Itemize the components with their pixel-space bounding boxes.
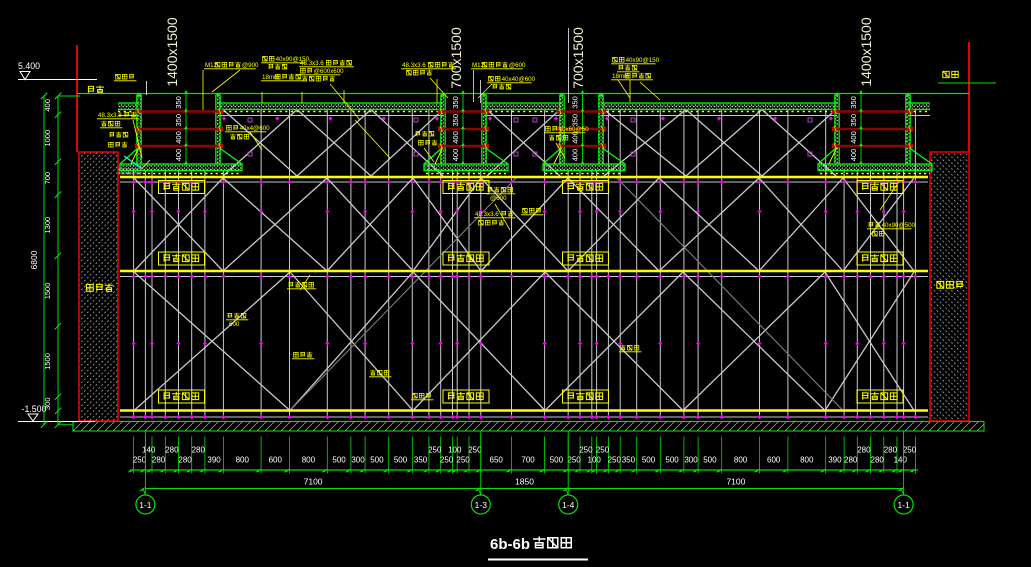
svg-text:100: 100 — [448, 446, 462, 455]
svg-text:100: 100 — [588, 456, 602, 465]
svg-text:1-4: 1-4 — [562, 500, 575, 510]
svg-text:800: 800 — [302, 456, 316, 465]
svg-text:700x1500: 700x1500 — [570, 27, 586, 89]
svg-text:18mm: 18mm — [612, 73, 629, 80]
svg-text:650: 650 — [490, 456, 504, 465]
svg-text:250: 250 — [456, 456, 470, 465]
svg-text:700x1500: 700x1500 — [448, 27, 464, 89]
svg-text:500: 500 — [394, 456, 408, 465]
svg-text:1400x1500: 1400x1500 — [858, 17, 874, 87]
svg-text:350: 350 — [571, 96, 580, 109]
svg-text:500: 500 — [642, 456, 656, 465]
svg-text:40x90@500: 40x90@500 — [882, 222, 916, 229]
svg-text:350: 350 — [570, 114, 579, 127]
svg-text:6b-6b: 6b-6b — [490, 536, 530, 553]
svg-text:600: 600 — [767, 456, 781, 465]
svg-text:140: 140 — [894, 456, 908, 465]
svg-text:390: 390 — [828, 456, 842, 465]
svg-text:40x40@600: 40x40@600 — [502, 76, 536, 83]
svg-text:250: 250 — [133, 456, 147, 465]
svg-text:1-3: 1-3 — [475, 500, 488, 510]
svg-text:400: 400 — [451, 131, 460, 144]
svg-text:350: 350 — [414, 456, 428, 465]
svg-text:500: 500 — [703, 456, 717, 465]
svg-text:@900: @900 — [242, 62, 259, 69]
svg-text:400: 400 — [174, 131, 183, 144]
svg-text:280: 280 — [178, 456, 192, 465]
svg-text:400: 400 — [451, 149, 460, 162]
svg-text:250: 250 — [608, 456, 622, 465]
svg-text:7100: 7100 — [304, 477, 323, 487]
svg-text:800: 800 — [236, 456, 250, 465]
svg-text:280: 280 — [844, 456, 858, 465]
svg-text:400: 400 — [849, 149, 858, 162]
svg-text:40x60@50: 40x60@50 — [559, 126, 590, 133]
svg-text:@600x600: @600x600 — [314, 68, 345, 75]
svg-text:1850: 1850 — [515, 477, 534, 487]
svg-text:@600: @600 — [509, 62, 526, 69]
svg-text:280: 280 — [165, 446, 179, 455]
svg-text:400: 400 — [571, 149, 580, 162]
svg-text:350: 350 — [849, 96, 858, 109]
svg-text:300: 300 — [351, 456, 365, 465]
svg-text:280: 280 — [152, 456, 166, 465]
svg-text:6800: 6800 — [29, 250, 39, 269]
svg-text:350: 350 — [622, 456, 636, 465]
svg-text:48.3x3.6: 48.3x3.6 — [402, 62, 426, 69]
svg-text:48.3x3.6: 48.3x3.6 — [300, 60, 324, 67]
svg-text:250: 250 — [468, 446, 482, 455]
svg-text:1400x1500: 1400x1500 — [164, 17, 180, 87]
svg-text:350: 350 — [174, 114, 183, 127]
svg-text:400: 400 — [174, 149, 183, 162]
svg-text:@600: @600 — [490, 195, 507, 202]
svg-text:600: 600 — [269, 456, 283, 465]
svg-text:7100: 7100 — [726, 477, 745, 487]
svg-text:280: 280 — [192, 446, 206, 455]
svg-text:140: 140 — [142, 446, 156, 455]
svg-text:18mm: 18mm — [262, 74, 279, 81]
svg-text:250: 250 — [579, 446, 593, 455]
svg-text:250: 250 — [567, 456, 581, 465]
svg-text:5.400: 5.400 — [18, 61, 40, 71]
svg-text:250: 250 — [903, 446, 917, 455]
svg-text:350: 350 — [174, 96, 183, 109]
svg-text:300: 300 — [684, 456, 698, 465]
svg-text:800: 800 — [734, 456, 748, 465]
svg-text:500: 500 — [332, 456, 346, 465]
svg-text:350: 350 — [451, 114, 460, 127]
svg-text:350: 350 — [849, 114, 858, 127]
svg-text:500: 500 — [665, 456, 679, 465]
svg-text:250: 250 — [428, 446, 442, 455]
svg-text:48.3x3.8: 48.3x3.8 — [98, 112, 122, 119]
svg-text:700: 700 — [521, 456, 535, 465]
svg-text:48.3x3.6: 48.3x3.6 — [475, 211, 499, 218]
svg-text:250: 250 — [440, 456, 454, 465]
svg-text:40x90@150: 40x90@150 — [626, 57, 660, 64]
svg-text:390: 390 — [207, 456, 221, 465]
svg-text:350: 350 — [451, 96, 460, 109]
svg-text:250: 250 — [596, 446, 610, 455]
svg-text:600: 600 — [229, 321, 240, 328]
svg-text:400: 400 — [849, 131, 858, 144]
svg-text:280: 280 — [884, 446, 898, 455]
svg-text:500: 500 — [370, 456, 384, 465]
svg-text:280: 280 — [857, 446, 871, 455]
svg-text:800: 800 — [800, 456, 814, 465]
svg-text:280: 280 — [871, 456, 885, 465]
svg-text:500: 500 — [550, 456, 564, 465]
svg-text:1-1: 1-1 — [897, 500, 910, 510]
svg-text:1-1: 1-1 — [139, 500, 152, 510]
svg-text:40x4@600: 40x4@600 — [240, 125, 271, 132]
